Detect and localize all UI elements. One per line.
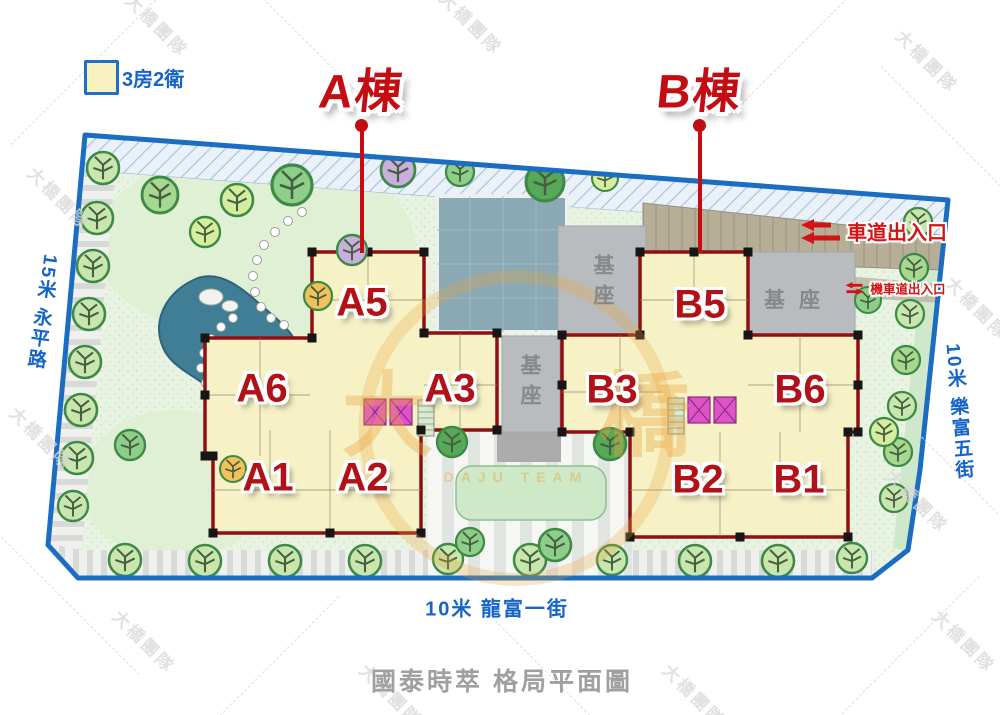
unit-label-b6: B6 bbox=[774, 368, 825, 413]
unit-label-b2: B2 bbox=[672, 458, 723, 503]
unit-label-a6: A6 bbox=[236, 367, 287, 412]
unit-label-b3: B3 bbox=[586, 368, 637, 413]
legend-3br-swatch bbox=[84, 60, 119, 95]
unit-label-a5: A5 bbox=[336, 281, 387, 326]
car-entrance-label: 車道出入口 bbox=[847, 217, 947, 246]
unit-label-b1: B1 bbox=[773, 458, 824, 503]
central-plaza bbox=[437, 196, 567, 332]
unit-label-a2: A2 bbox=[337, 456, 388, 501]
motorcycle-entrance-label: 機車道出入口 bbox=[870, 279, 945, 298]
unit-label-a1: A1 bbox=[242, 456, 293, 501]
site-plan-page: 大橋團隊 大橋團隊 大橋團隊 大橋團隊 大橋團隊 大橋團隊 大橋團隊 大橋團隊 … bbox=[0, 0, 1000, 715]
legend-3br-label: 3房2衛 bbox=[122, 63, 184, 92]
building-a-callout: A棟 bbox=[316, 53, 408, 122]
motorcycle-entrance-callout: 機車道出入口 bbox=[844, 279, 945, 298]
car-entrance-arrows-icon bbox=[799, 218, 841, 244]
unit-label-a3: A3 bbox=[424, 367, 475, 412]
motorcycle-entrance-arrows-icon bbox=[844, 281, 864, 295]
building-a-leader-line bbox=[360, 131, 364, 253]
street-south-label: 10米 龍富一街 bbox=[425, 593, 569, 622]
podium-label-center: 基座 bbox=[514, 354, 544, 414]
podium-label-east: 基座 bbox=[764, 284, 834, 314]
page-title: 國泰時萃 格局平面圖 bbox=[371, 662, 633, 698]
building-b-leader-line bbox=[698, 131, 702, 253]
unit-label-b5: B5 bbox=[674, 283, 725, 328]
podium-label-north: 基座 bbox=[587, 254, 617, 314]
car-entrance-callout: 車道出入口 bbox=[799, 217, 947, 246]
building-b-callout: B棟 bbox=[654, 53, 746, 122]
